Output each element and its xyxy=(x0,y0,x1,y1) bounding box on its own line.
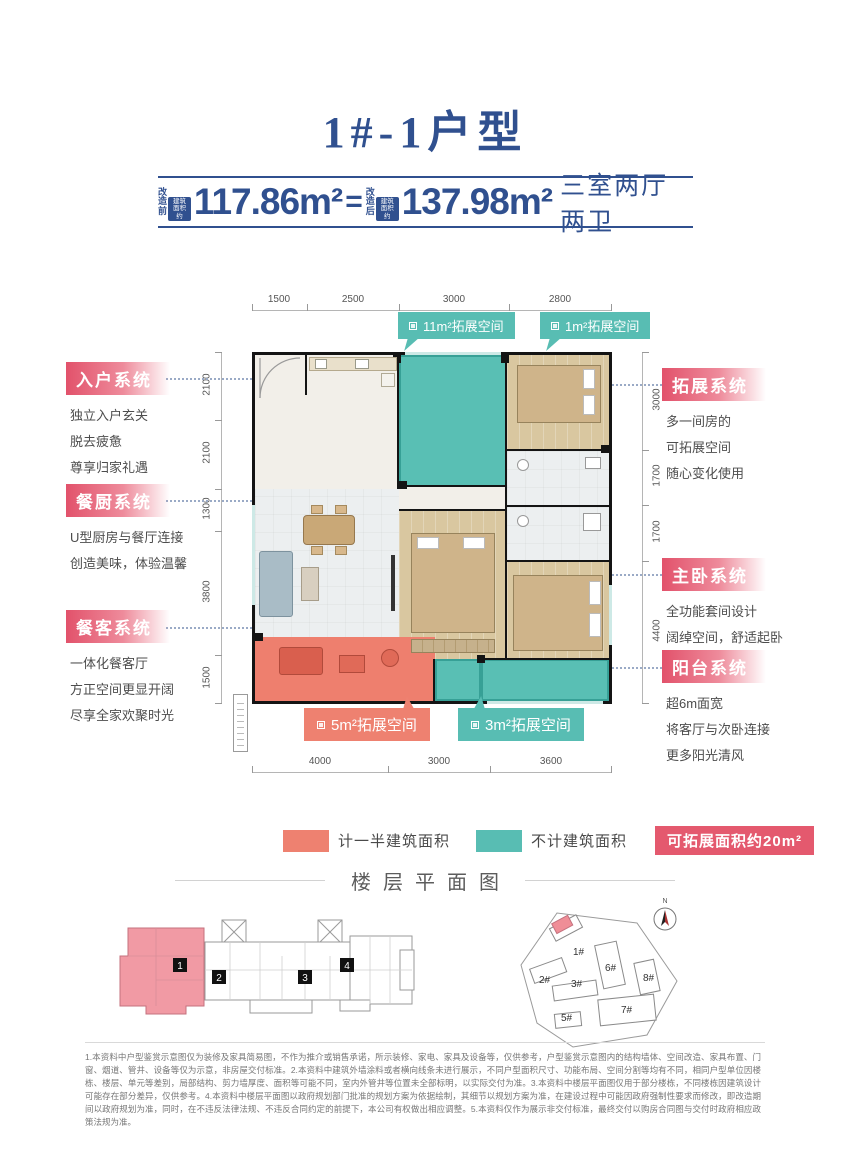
dim-bottom-3600: 3600 xyxy=(538,756,564,767)
building-label-6: 6# xyxy=(605,963,617,974)
unit-1-highlight xyxy=(120,928,204,1014)
dim-right-1700b: 1700 xyxy=(652,512,663,552)
pillow xyxy=(583,369,595,389)
siteplan-diagram: 1# 2# 3# 5# 6# 7# 8# N xyxy=(495,885,715,1060)
system-title: 阳台系统 xyxy=(662,650,766,683)
legend: 计一半建筑面积 不计建筑面积 可拓展面积约20m² xyxy=(283,826,814,855)
hallway xyxy=(399,487,507,511)
floorplan-area: 1500 2500 3000 2800 4000 3000 3600 2100 … xyxy=(252,296,612,780)
system-title: 入户系统 xyxy=(66,362,170,395)
system-line: 一体化餐客厅 xyxy=(70,651,226,677)
section-header: 楼层平面图 xyxy=(0,866,850,895)
building-label-7: 7# xyxy=(621,1005,633,1016)
pillow xyxy=(463,537,485,549)
after-area-tag: 建筑面积约 xyxy=(376,197,399,222)
expand-icon xyxy=(317,721,325,729)
system-title: 餐客系统 xyxy=(66,610,170,643)
stove xyxy=(355,359,369,369)
north-compass-icon: N xyxy=(654,898,676,930)
not-counted-swatch xyxy=(476,830,522,852)
system-balcony: 阳台系统 超6m面宽 将客厅与次卧连接 更多阳光清风 xyxy=(662,650,822,769)
area-after-value: 137.98m² xyxy=(402,181,552,223)
before-area-tag: 建筑面积约 xyxy=(168,197,191,222)
system-line: 超6m面宽 xyxy=(666,691,822,717)
area-summary-bar: 改 造 前 建筑面积约 117.86m² = 改 造 后 建筑面积约 137.9… xyxy=(158,176,693,228)
coffee-table xyxy=(301,567,319,601)
leader-master xyxy=(612,574,662,576)
equals-sign: = xyxy=(345,185,363,219)
pillow xyxy=(589,581,601,605)
ruler-bottom: 4000 3000 3600 xyxy=(252,758,612,778)
flyer-page: 1#-1户型 改 造 前 建筑面积约 117.86m² = 改 造 后 建筑面积… xyxy=(0,0,850,1154)
expandable-area-badge: 可拓展面积约20m² xyxy=(655,826,814,855)
expand-icon xyxy=(471,721,479,729)
not-counted-label: 不计建筑面积 xyxy=(531,830,627,851)
system-line: 独立入户玄关 xyxy=(70,403,226,429)
building-label-1: 1# xyxy=(573,947,585,958)
system-line: 全功能套间设计 xyxy=(666,599,822,625)
system-line: 方正空间更显开阔 xyxy=(70,677,226,703)
callout-text: 1m²拓展空间 xyxy=(565,316,639,335)
unit-badge-4: 4 xyxy=(344,961,350,972)
disclaimer-text: 1.本资料中户型鉴赏示意图仅为装修及家具简易图，不作为推介或销售承诺，所示装修、… xyxy=(85,1051,761,1129)
system-kitchen: 餐厨系统 U型厨房与餐厅连接 创造美味，体验温馨 xyxy=(66,484,226,577)
system-title: 主卧系统 xyxy=(662,558,766,591)
toilet xyxy=(517,515,529,527)
after-renovation-label: 改 造 后 xyxy=(366,188,375,217)
dim-right-4400: 4400 xyxy=(652,611,663,651)
system-master: 主卧系统 全功能套间设计 阔绰空间，舒适起卧 xyxy=(662,558,822,651)
system-line: U型厨房与餐厅连接 xyxy=(70,525,226,551)
section-line-left xyxy=(175,880,325,881)
shower xyxy=(583,513,601,531)
dim-right-1700a: 1700 xyxy=(652,456,663,496)
system-expand: 拓展系统 多一间房的 可拓展空间 随心变化使用 xyxy=(662,368,822,487)
page-title: 1#-1户型 xyxy=(0,96,850,160)
chair xyxy=(335,505,347,514)
side-table xyxy=(339,655,365,673)
system-line: 更多阳光清风 xyxy=(666,743,822,769)
floorplan xyxy=(252,352,612,704)
floorplate-diagram: 1 2 3 4 xyxy=(100,900,430,1045)
callout-expand-5: 5m²拓展空间 xyxy=(304,708,430,741)
dim-top-2500: 2500 xyxy=(340,294,366,305)
system-line: 脱去疲惫 xyxy=(70,429,226,455)
dim-top-3000: 3000 xyxy=(441,294,467,305)
balcony xyxy=(481,659,609,701)
before-renovation-label: 改 造 前 xyxy=(158,188,167,217)
pillow xyxy=(417,537,439,549)
system-entry: 入户系统 独立入户玄关 脱去疲惫 尊享归家礼遇 xyxy=(66,362,226,481)
corner-label-box xyxy=(233,694,248,752)
leader-expand xyxy=(612,384,662,386)
ruler-top: 1500 2500 3000 2800 xyxy=(252,296,612,312)
kitchen-sink xyxy=(315,359,327,369)
system-line: 随心变化使用 xyxy=(666,461,822,487)
divider-line xyxy=(85,1042,765,1043)
callout-text: 3m²拓展空间 xyxy=(485,714,571,735)
system-line: 创造美味，体验温馨 xyxy=(70,551,226,577)
half-area-label: 计一半建筑面积 xyxy=(338,830,450,851)
chair xyxy=(311,546,323,555)
dining-table xyxy=(303,515,355,545)
chair xyxy=(311,505,323,514)
plant xyxy=(381,649,399,667)
callout-expand-11: 11m²拓展空间 xyxy=(398,312,515,339)
system-line: 将客厅与次卧连接 xyxy=(666,717,822,743)
dim-top-2800: 2800 xyxy=(547,294,573,305)
dim-bottom-4000: 4000 xyxy=(307,756,333,767)
pillow xyxy=(583,395,595,415)
system-line: 阔绰空间，舒适起卧 xyxy=(666,625,822,651)
system-title: 餐厨系统 xyxy=(66,484,170,517)
building-label-3: 3# xyxy=(571,979,583,990)
unit-badge-1: 1 xyxy=(177,961,183,972)
unit-badge-3: 3 xyxy=(302,973,308,984)
system-dining: 餐客系统 一体化餐客厅 方正空间更显开阔 尽享全家欢聚时光 xyxy=(66,610,226,729)
section-line-right xyxy=(525,880,675,881)
unit-badge-2: 2 xyxy=(216,973,222,984)
system-line: 多一间房的 xyxy=(666,409,822,435)
wardrobe xyxy=(411,639,495,653)
pillow xyxy=(589,613,601,637)
callout-text: 11m²拓展空间 xyxy=(423,316,504,335)
dim-top-1500: 1500 xyxy=(266,294,292,305)
dim-bottom-3000: 3000 xyxy=(426,756,452,767)
tv xyxy=(391,555,395,611)
bath-sink xyxy=(585,457,601,469)
system-line: 可拓展空间 xyxy=(666,435,822,461)
leader-balcony xyxy=(612,667,662,669)
sofa xyxy=(259,551,293,617)
dim-left-3800: 3800 xyxy=(202,572,213,612)
expand-icon xyxy=(409,322,417,330)
system-line: 尽享全家欢聚时光 xyxy=(70,703,226,729)
toilet xyxy=(517,459,529,471)
ruler-right: 3000 1700 1700 4400 xyxy=(642,352,658,704)
callout-expand-3: 3m²拓展空间 xyxy=(458,708,584,741)
area-before-value: 117.86m² xyxy=(194,181,342,223)
building-label-8: 8# xyxy=(643,973,655,984)
room-layout-text: 三室两厅两卫 xyxy=(560,166,693,238)
expand-icon xyxy=(551,322,559,330)
system-line: 尊享归家礼遇 xyxy=(70,455,226,481)
door-arc xyxy=(259,357,301,399)
fridge xyxy=(381,373,395,387)
north-label: N xyxy=(662,898,667,905)
half-area-swatch xyxy=(283,830,329,852)
expand-zone-11 xyxy=(399,355,507,487)
lounge-sofa xyxy=(279,647,323,675)
building-label-2: 2# xyxy=(539,975,551,986)
chair xyxy=(335,546,347,555)
expand-zone-3 xyxy=(435,659,481,701)
callout-expand-1: 1m²拓展空间 xyxy=(540,312,650,339)
section-title: 楼层平面图 xyxy=(351,866,511,895)
building-label-5: 5# xyxy=(561,1013,573,1024)
callout-text: 5m²拓展空间 xyxy=(331,714,417,735)
system-title: 拓展系统 xyxy=(662,368,766,401)
